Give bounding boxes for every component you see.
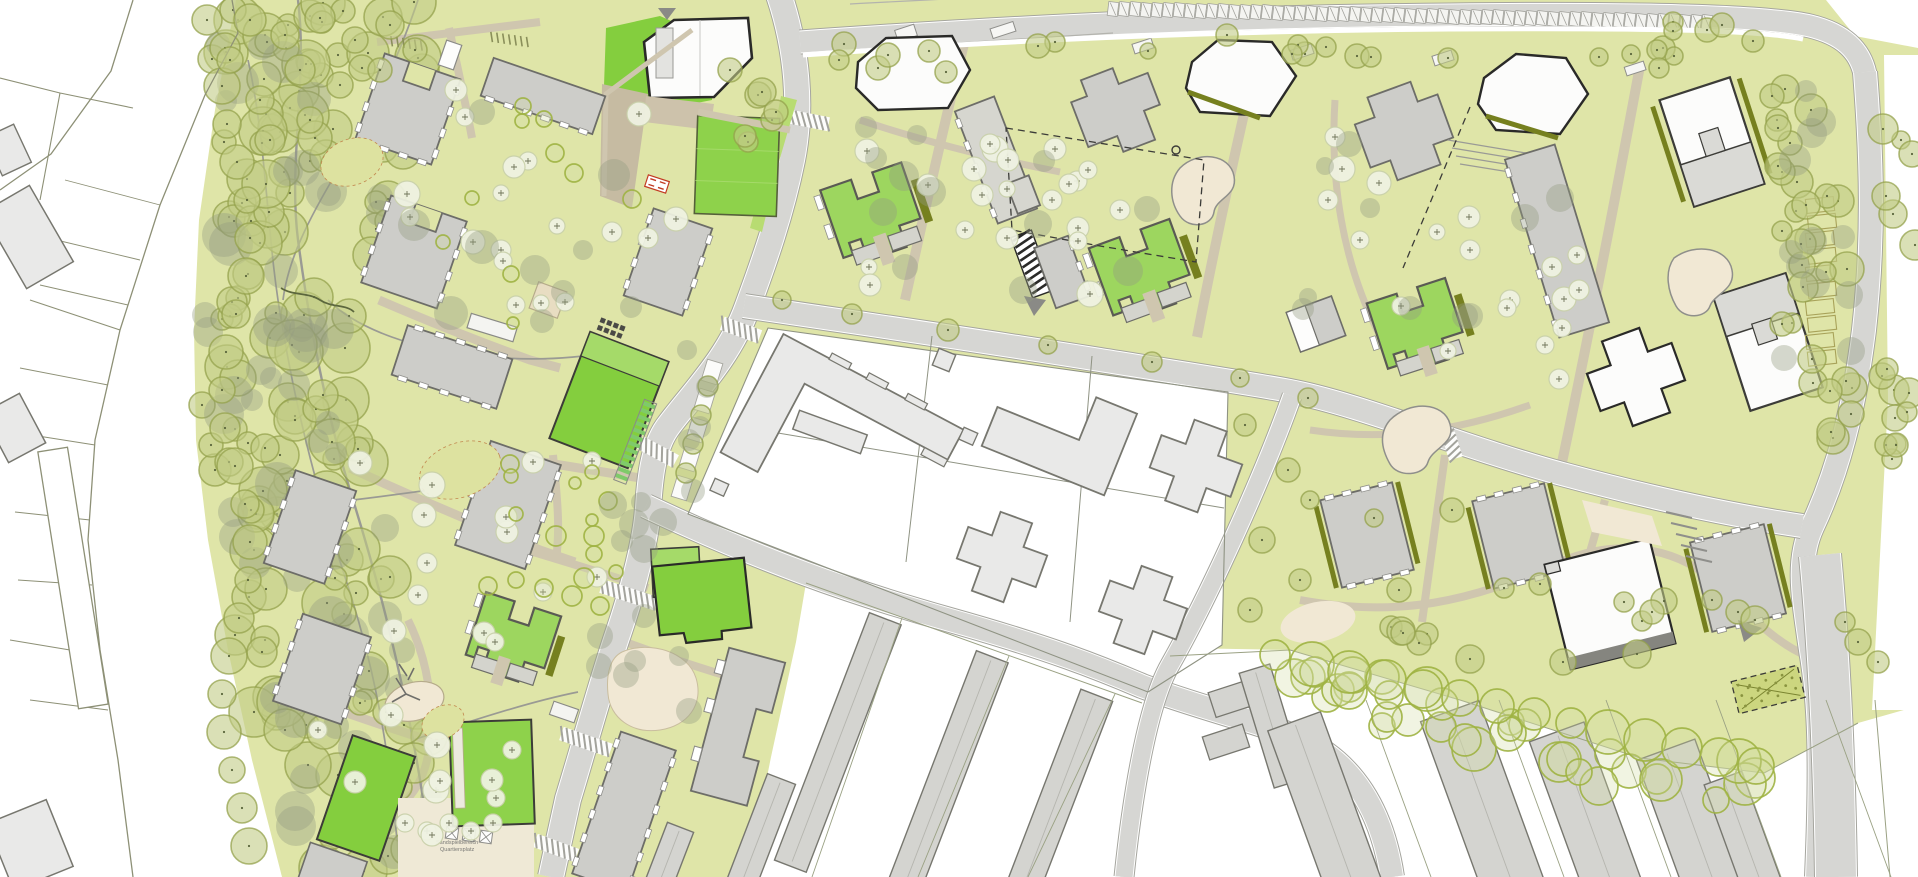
svg-text:Sandspielbereich: Sandspielbereich [436, 840, 478, 846]
svg-text:Quartiersplatz: Quartiersplatz [440, 847, 474, 853]
